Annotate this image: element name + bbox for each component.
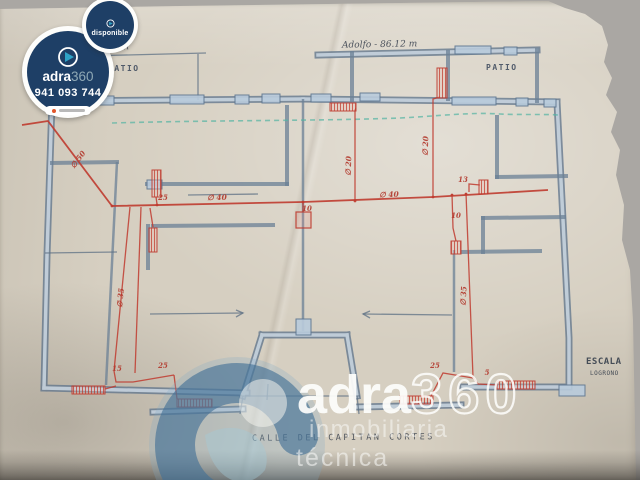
scale-label: ESCALA [586, 357, 622, 367]
available-label: disponible [92, 30, 129, 37]
watermark-subtitle-2: técnica [296, 444, 389, 473]
footer-brand-dot-icon [52, 109, 56, 113]
adra360-icon [57, 46, 79, 68]
adra360-mini-icon [106, 19, 115, 28]
agency-phone: 941 093 744 [35, 87, 102, 99]
svg-text:10: 10 [451, 211, 461, 220]
utility-dashed-line [112, 113, 558, 123]
svg-text:∅ 35: ∅ 35 [115, 288, 126, 308]
agency-brand: adra360 [42, 70, 93, 84]
svg-text:25: 25 [157, 193, 168, 202]
svg-text:13: 13 [458, 175, 468, 184]
svg-text:∅ 40: ∅ 40 [379, 190, 400, 200]
svg-text:∅ 35: ∅ 35 [458, 286, 468, 306]
svg-text:∅ 40: ∅ 40 [207, 193, 228, 202]
svg-text:15: 15 [112, 364, 122, 373]
agency-badge-footer [45, 106, 91, 115]
watermark-subtitle-1: inmobiliaria [309, 416, 448, 444]
patio-right-label: PATIO [486, 63, 518, 72]
svg-text:∅ 20: ∅ 20 [344, 155, 354, 176]
svg-text:10: 10 [302, 204, 312, 213]
handwritten-measure-right: Adolfo - 86.12 m [342, 39, 417, 50]
city-label: LOGROÑO [590, 370, 619, 377]
floorplan-photo: ∅ 50∅ 40∅ 40∅ 35∅ 35∅ 20∅ 20 25101310152… [0, 0, 640, 480]
brand-prefix: adra [42, 69, 71, 84]
brand-suffix: 360 [71, 69, 94, 84]
available-badge-inner: disponible [86, 1, 134, 49]
footer-brand-text-placeholder [59, 109, 85, 112]
svg-text:∅ 20: ∅ 20 [421, 135, 431, 156]
